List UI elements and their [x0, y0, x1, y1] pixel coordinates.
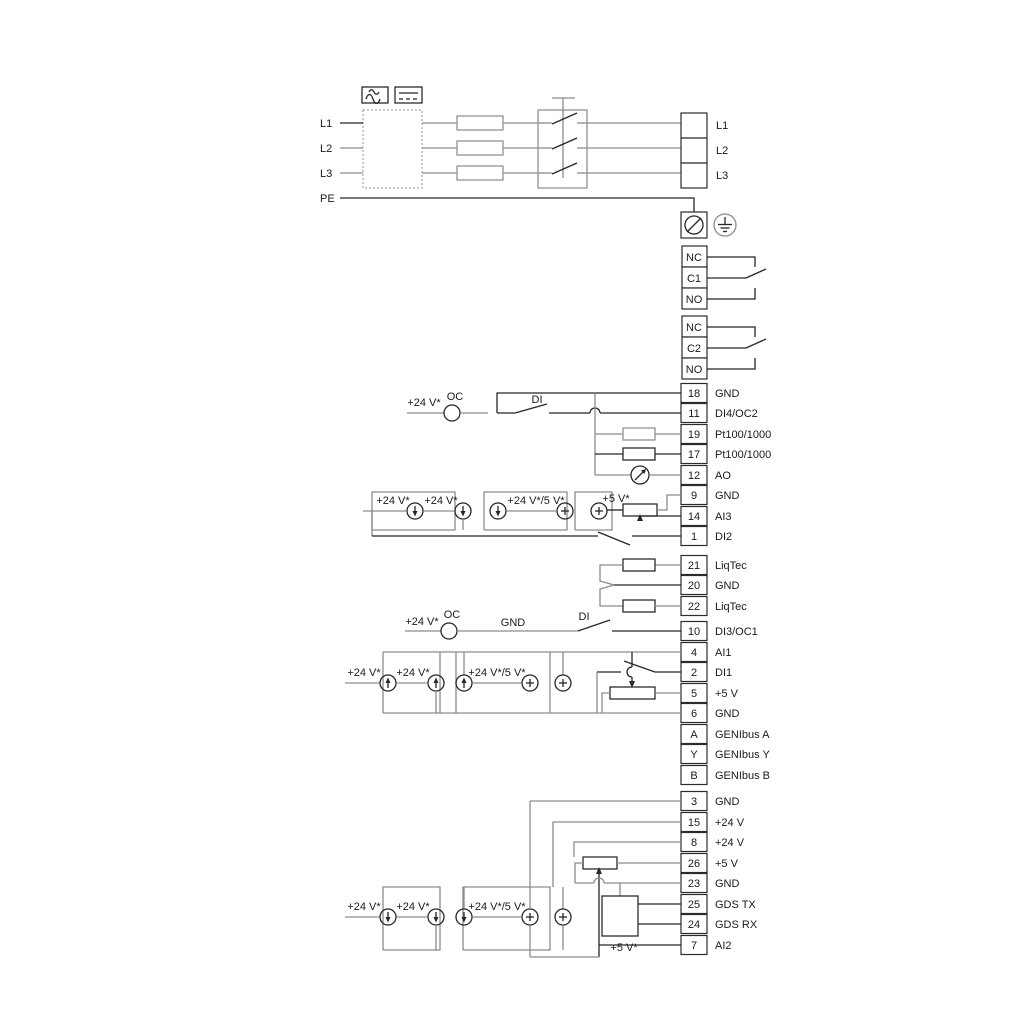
main-switch-icon	[538, 98, 587, 188]
svg-text:AI2: AI2	[715, 940, 732, 952]
svg-text:GND: GND	[715, 388, 740, 400]
svg-text:+5 V: +5 V	[715, 688, 739, 700]
liqtec-resistor-icon	[623, 559, 655, 571]
terminal-row: 3GND	[681, 792, 740, 811]
terminal-strip: 18GND 11DI4/OC2 19Pt100/1000 17Pt100/100…	[681, 384, 771, 955]
di-label: DI	[579, 611, 590, 623]
plus24v-label: +24 V*	[396, 667, 430, 679]
terminal-row: 10DI3/OC1	[681, 622, 758, 641]
svg-text:7: 7	[691, 940, 697, 952]
voltage-source-icon	[557, 503, 573, 519]
svg-text:DI2: DI2	[715, 531, 732, 543]
svg-text:21: 21	[688, 560, 700, 572]
terminal-row: 6GND	[681, 704, 740, 723]
svg-text:A: A	[690, 729, 698, 741]
ac-symbol-icon	[362, 87, 388, 104]
svg-text:22: 22	[688, 601, 700, 613]
svg-text:12: 12	[688, 470, 700, 482]
di2-switch-icon	[598, 532, 630, 545]
wiper-arrow	[596, 867, 602, 874]
svg-text:DI3/OC1: DI3/OC1	[715, 626, 758, 638]
svg-text:19: 19	[688, 429, 700, 441]
pt-sensor-ao-circuit	[595, 393, 681, 484]
svg-text:26: 26	[688, 858, 700, 870]
current-source-down-icon	[455, 503, 471, 519]
voltage-source-icon	[555, 675, 571, 691]
terminal-row: 1DI2	[681, 527, 732, 546]
plus24v-label: +24 V*	[347, 667, 381, 679]
terminal-row: 26+5 V	[681, 854, 739, 873]
plus24v-5v-label: +24 V*/5 V*	[468, 667, 526, 679]
svg-text:GND: GND	[715, 878, 740, 890]
svg-text:AO: AO	[715, 470, 731, 482]
terminal-row: 5+5 V	[681, 684, 739, 703]
ai3-sensor-options: +24 V* +24 V* +24 V*/5 V* +5 V*	[363, 492, 681, 545]
svg-text:GND: GND	[715, 796, 740, 808]
svg-text:4: 4	[691, 647, 697, 659]
svg-text:25: 25	[688, 899, 700, 911]
svg-text:GND: GND	[715, 580, 740, 592]
current-source-up-icon	[428, 675, 444, 691]
svg-text:9: 9	[691, 490, 697, 502]
di-label: DI	[532, 394, 543, 406]
open-collector-icon	[444, 405, 460, 421]
terminal-row: 7AI2	[681, 936, 732, 955]
svg-text:GENIbus A: GENIbus A	[715, 729, 770, 741]
voltage-source-icon	[522, 675, 538, 691]
svg-text:GDS RX: GDS RX	[715, 919, 758, 931]
power-label-l3: L3	[320, 168, 332, 180]
wiper-arrow	[637, 514, 643, 521]
gnd-label: GND	[501, 617, 526, 629]
mains-label-l2: L2	[716, 145, 728, 157]
plus24v-label: +24 V*	[407, 397, 441, 409]
di3-oc1-circuit: +24 V* OC GND DI	[405, 609, 681, 639]
svg-text:8: 8	[691, 837, 697, 849]
svg-text:GENIbus B: GENIbus B	[715, 770, 770, 782]
mains-label-l1: L1	[716, 120, 728, 132]
svg-text:Y: Y	[690, 749, 698, 761]
current-source-down-icon	[407, 503, 423, 519]
power-input-section: L1 L2 L3 PE	[320, 87, 736, 238]
power-label-pe: PE	[320, 193, 335, 205]
svg-text:10: 10	[688, 626, 700, 638]
potentiometer-icon	[610, 687, 655, 699]
plus5v-label: +5 V*	[610, 942, 638, 954]
mains-label-l3: L3	[716, 170, 728, 182]
voltage-source-icon	[591, 503, 607, 519]
svg-text:2: 2	[691, 667, 697, 679]
terminal-row: 4AI1	[681, 643, 732, 662]
terminal-row: 2DI1	[681, 663, 732, 682]
terminal-row: AGENIbus A	[681, 725, 770, 744]
terminal-row: 15+24 V	[681, 813, 745, 832]
terminal-row: 22LiqTec	[681, 597, 747, 616]
relay-block-1: NC C1 NO	[682, 246, 766, 309]
ai1-sensor-options: +24 V* +24 V* +24 V*/5 V*	[345, 652, 681, 713]
earth-ground-icon	[714, 214, 736, 236]
terminal-row: 8+24 V	[681, 833, 745, 852]
plus24v-label: +24 V*	[396, 901, 430, 913]
oc-label: OC	[447, 391, 464, 403]
svg-text:17: 17	[688, 449, 700, 461]
relay2-nc: NC	[686, 322, 702, 334]
svg-text:GDS TX: GDS TX	[715, 899, 756, 911]
svg-text:B: B	[690, 770, 697, 782]
svg-text:DI1: DI1	[715, 667, 732, 679]
svg-text:+5 V: +5 V	[715, 858, 739, 870]
open-collector-icon	[441, 623, 457, 639]
plus24v-5v-label: +24 V*/5 V*	[507, 495, 565, 507]
terminal-row: 11DI4/OC2	[681, 404, 758, 423]
svg-text:3: 3	[691, 796, 697, 808]
liqtec-resistor-icon	[623, 600, 655, 612]
relay2-no: NO	[686, 364, 703, 376]
svg-text:+24 V: +24 V	[715, 817, 745, 829]
svg-text:LiqTec: LiqTec	[715, 601, 747, 613]
svg-text:24: 24	[688, 919, 700, 931]
relay2-c2: C2	[687, 343, 701, 355]
terminal-row: YGENIbus Y	[681, 745, 770, 764]
relay1-nc: NC	[686, 252, 702, 264]
di1-switch-icon	[624, 661, 655, 672]
svg-text:18: 18	[688, 388, 700, 400]
analog-output-meter-icon	[631, 466, 649, 484]
terminal-row: 14AI3	[681, 507, 732, 526]
current-source-down-icon	[490, 503, 506, 519]
plus24v-label: +24 V*	[376, 495, 410, 507]
wiring-diagram: L1 L2 L3 PE	[0, 0, 1024, 1024]
terminal-row: 21LiqTec	[681, 556, 747, 575]
wiring-diagram-page: L1 L2 L3 PE	[0, 0, 1024, 1024]
svg-text:15: 15	[688, 817, 700, 829]
filter-box	[363, 110, 422, 188]
svg-text:23: 23	[688, 878, 700, 890]
voltage-source-icon	[522, 909, 538, 925]
power-wires	[340, 123, 694, 212]
svg-text:11: 11	[688, 408, 699, 420]
terminal-row: 24GDS RX	[681, 915, 758, 934]
svg-text:6: 6	[691, 708, 697, 720]
terminal-row: 9GND	[681, 486, 740, 505]
relay1-no: NO	[686, 294, 703, 306]
svg-text:AI3: AI3	[715, 511, 732, 523]
pt100-resistor-icon	[623, 448, 655, 460]
svg-text:GND: GND	[715, 708, 740, 720]
terminal-row: 25GDS TX	[681, 895, 756, 914]
svg-text:5: 5	[691, 688, 697, 700]
plus24v-label: +24 V*	[405, 616, 439, 628]
pt100-resistor-icon	[623, 428, 655, 440]
svg-text:GENIbus Y: GENIbus Y	[715, 749, 770, 761]
terminal-row: 12AO	[681, 466, 731, 485]
oc-label: OC	[444, 609, 461, 621]
voltage-source-icon	[555, 909, 571, 925]
relay-block-2: NC C2 NO	[682, 316, 766, 379]
terminal-row: 19Pt100/1000	[681, 425, 771, 444]
power-label-l1: L1	[320, 118, 332, 130]
liqtec-circuit	[600, 559, 681, 612]
mains-terminal-block: L1 L2 L3	[681, 113, 728, 188]
plus24v-label: +24 V*	[424, 495, 458, 507]
terminal-row: BGENIbus B	[681, 766, 770, 785]
relay1-c1: C1	[687, 273, 701, 285]
svg-text:AI1: AI1	[715, 647, 732, 659]
terminal-row: 20GND	[681, 576, 740, 595]
svg-text:LiqTec: LiqTec	[715, 560, 747, 572]
wire-hop	[627, 667, 632, 677]
svg-text:14: 14	[688, 511, 700, 523]
fuse-icons	[457, 116, 503, 180]
svg-text:GND: GND	[715, 490, 740, 502]
terminal-row: 17Pt100/1000	[681, 445, 771, 464]
dc-symbol-icon	[395, 87, 422, 103]
svg-text:DI4/OC2: DI4/OC2	[715, 408, 758, 420]
svg-text:20: 20	[688, 580, 700, 592]
pe-screw-terminal-icon	[681, 212, 707, 238]
terminal-row: 23GND	[681, 874, 740, 893]
svg-text:1: 1	[691, 531, 697, 543]
potentiometer-icon	[583, 857, 617, 869]
svg-text:Pt100/1000: Pt100/1000	[715, 449, 771, 461]
plus24v-5v-label: +24 V*/5 V*	[468, 901, 526, 913]
plus24v-label: +24 V*	[347, 901, 381, 913]
plus5v-label: +5 V*	[602, 493, 630, 505]
current-source-down-icon	[428, 909, 444, 925]
svg-text:+24 V: +24 V	[715, 837, 745, 849]
terminal-row: 18GND	[681, 384, 740, 403]
di4-oc2-circuit: +24 V* OC DI	[407, 391, 681, 421]
gds-sensor-box	[602, 896, 638, 936]
ai2-gds-section: +5 V* +24 V* +24 V* +24 V*/5 V*	[345, 801, 681, 957]
power-label-l2: L2	[320, 143, 332, 155]
svg-text:Pt100/1000: Pt100/1000	[715, 429, 771, 441]
